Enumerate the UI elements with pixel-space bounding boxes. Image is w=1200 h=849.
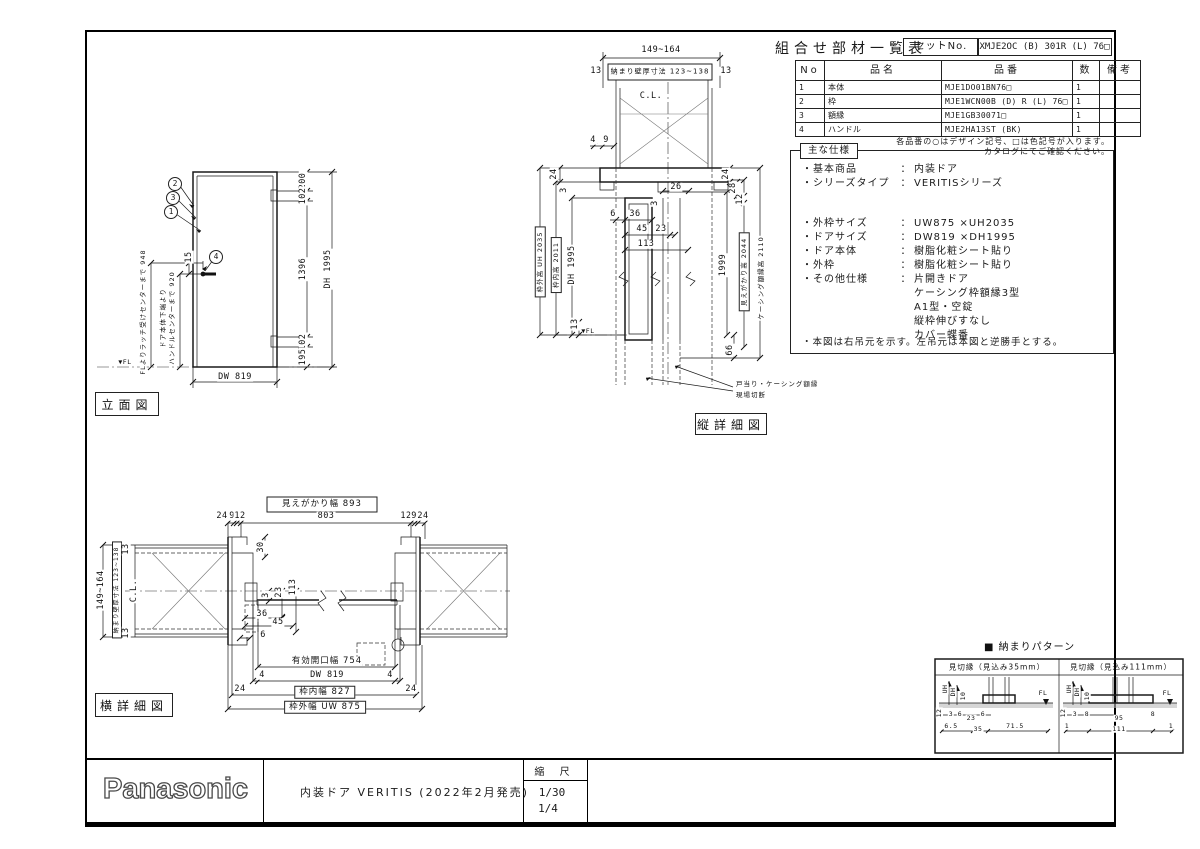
balloon-3: 3 [166, 191, 180, 205]
handle-height-note1: ドア本体下端より [160, 287, 167, 349]
dim-113: 113 [637, 240, 656, 249]
p1-65: 6.5 [943, 723, 958, 730]
cell-name: 枠 [825, 95, 942, 109]
elevation-drawing [85, 160, 425, 430]
dim-6: 6 [259, 631, 267, 640]
p1-fl: FL [1038, 690, 1049, 697]
latch-height-note: FLよりラッチ受けセンターまで 948 [140, 248, 147, 375]
dim-1396: 1396 [299, 257, 308, 281]
horizontal-detail-view: 149~164 納まり壁厚寸法 123~138 13 13 C.L. 見えがかり… [95, 495, 520, 735]
dim-24-right: 24 [722, 167, 731, 180]
dim-3: 3 [262, 591, 271, 599]
dim-24-right: 24 [404, 685, 417, 694]
dim-23: 23 [275, 585, 284, 598]
pattern1-header: 見切縁（見込み35mm） [948, 663, 1046, 671]
dim-45: 45 [635, 225, 648, 234]
dim-effective-width: 有効開口幅 754 [291, 657, 363, 666]
pattern2-header: 見切縁（見込み111mm） [1069, 663, 1173, 671]
cell-no: 2 [796, 95, 825, 109]
p1-715: 71.5 [1005, 723, 1025, 730]
col-name: 品名 [825, 61, 942, 81]
dim-visible-width: 見えがかり幅 893 [281, 500, 363, 509]
p1-dh: DH [950, 687, 957, 698]
elevation-view: 2 3 1 4 200 102 1396 102 195 DH 1995 DW … [85, 160, 425, 430]
spec-list: ・基本商品：内装ドア ・シリーズタイプ：VERITISシリーズ ・外枠サイズ：U… [802, 163, 1107, 343]
dim-30: 30 [257, 540, 266, 553]
dim-3-left: 3 [560, 186, 569, 194]
dim-113: 113 [289, 578, 298, 597]
dim-24-left: 24 [233, 685, 246, 694]
col-qty: 数 [1073, 61, 1100, 81]
centerline-label: C.L. [639, 92, 663, 101]
p1-10: 10 [960, 691, 967, 702]
horizontal-detail-label: 横詳細図 [95, 693, 173, 717]
p2-8b: 8 [1150, 711, 1156, 718]
dim-dh: DH 1995 [324, 248, 333, 289]
dim-36: 36 [255, 610, 268, 619]
p2-fl: FL [1162, 690, 1173, 697]
p1-12: 12 [936, 708, 943, 719]
dim-13-floor: 13 [571, 317, 580, 330]
cell-qty: 1 [1073, 81, 1100, 95]
dim-66: 66 [726, 343, 735, 356]
cell-name: 本体 [825, 81, 942, 95]
spec-value: 樹脂化粧シート貼り [914, 245, 1013, 259]
elevation-label: 立面図 [95, 392, 159, 416]
vertical-detail-view: 149~164 納まり壁厚寸法 123~138 13 13 C.L. 4 9 2… [530, 40, 785, 440]
col-no: No [796, 61, 825, 81]
cell-remarks [1100, 81, 1141, 95]
cell-part: MJE1GB30071□ [942, 109, 1073, 123]
spec-value: 内装ドア [914, 163, 958, 177]
cell-name: ハンドル [825, 123, 942, 137]
parts-table-header-row: No 品名 品番 数 備考 [796, 61, 1141, 81]
drawing-description: 内装ドア VERITIS (2022年2月発売) [300, 784, 529, 800]
cell-no: 4 [796, 123, 825, 137]
cell-name: 額縁 [825, 109, 942, 123]
cell-part: MJE1DO01BN76□ [942, 81, 1073, 95]
p2-111: 111 [1111, 726, 1126, 733]
p1-3: 3 [948, 711, 954, 718]
table-row: 4 ハンドル MJE2HA13ST (BK) 1 [796, 123, 1141, 137]
dim-13-left: 13 [589, 67, 602, 76]
fl-marker: ▼FL [117, 359, 132, 366]
spec-value: 片開きドア [914, 273, 969, 287]
dim-24a: 24 [215, 512, 228, 521]
spec-extra: A1型・空錠 [802, 301, 1107, 315]
dim-dw: DW 819 [217, 373, 253, 382]
dim-12: 12 [736, 192, 745, 205]
dim-13-right: 13 [719, 67, 732, 76]
dim-1999: 1999 [719, 253, 728, 277]
spec-colon: ： [898, 163, 914, 177]
spec-label: ・シリーズタイプ [802, 177, 898, 191]
p2-3: 3 [1072, 711, 1078, 718]
handle-height-note2: ハンドルセンターまで 920 [169, 270, 176, 365]
spec-colon: ： [898, 177, 914, 191]
p2-uh: UH [1066, 684, 1073, 695]
cell-qty: 1 [1073, 123, 1100, 137]
dim-door-height: DH 1995 [568, 244, 577, 285]
set-no-label: セットNo. [903, 38, 979, 56]
dim-24b: 24 [416, 512, 429, 521]
panasonic-logo: Panasonic [103, 773, 248, 806]
spec-value: DW819 ×DH1995 [914, 231, 1016, 245]
spec-label: ・基本商品 [802, 163, 898, 177]
col-remarks: 備考 [1100, 61, 1141, 81]
p2-1a: 1 [1064, 723, 1070, 730]
dim-13-bottom: 13 [122, 626, 131, 639]
dim-9: 9 [602, 136, 610, 145]
set-no-value: XMJE2OC (B) 301R (L) 76□ [977, 38, 1112, 56]
dim-6: 6 [609, 210, 617, 219]
dim-13-top: 13 [122, 542, 131, 555]
spec-extra: 縦枠伸びすなし [802, 315, 1107, 329]
p2-1b: 1 [1168, 723, 1174, 730]
p1-uh: UH [942, 684, 949, 695]
spec-box-label: 主な仕様 [800, 143, 858, 159]
dim-45: 45 [271, 618, 284, 627]
table-row: 2 枠 MJE1WCN00B (D) R (L) 76□ 1 [796, 95, 1141, 109]
p2-dh: DH [1074, 687, 1081, 698]
scale-divider [523, 780, 587, 781]
dim-wall-range: 149~164 [97, 569, 106, 610]
dim-36: 36 [628, 210, 641, 219]
divider [263, 760, 264, 822]
table-row: 3 額縁 MJE1GB30071□ 1 [796, 109, 1141, 123]
dim-dw: DW 819 [309, 671, 345, 680]
dim-frame-inner-height: 枠内高 2011 [551, 237, 562, 293]
fitting-pattern-panel: ■ 納まりパターン 見切縁（見込み35mm） 見切縁（見込み111mm） UH … [933, 643, 1189, 758]
cell-qty: 1 [1073, 95, 1100, 109]
title-block: Panasonic 内装ドア VERITIS (2022年2月発売) 縮 尺 1… [85, 758, 1112, 822]
dim-wall-box: 納まり壁厚寸法 123~138 [610, 69, 711, 76]
vertical-detail-label: 縦詳細図 [695, 413, 767, 435]
site-cut-note2: 現場切断 [735, 392, 767, 399]
dim-frame-outer-height: 枠外高 UH 2035 [535, 227, 546, 298]
cell-remarks [1100, 95, 1141, 109]
dim-23: 23 [654, 225, 667, 234]
p2-10: 10 [1084, 691, 1091, 702]
balloon-1: 1 [164, 205, 178, 219]
dim-195: 195 [299, 348, 308, 367]
site-cut-note1: 戸当り・ケーシング額縁 [735, 381, 819, 388]
cell-part: MJE1WCN00B (D) R (L) 76□ [942, 95, 1073, 109]
dim-102: 102 [299, 187, 308, 206]
spec-colon: ： [898, 217, 914, 231]
p2-12: 12 [1060, 708, 1067, 719]
spec-label: ・ドア本体 [802, 245, 898, 259]
dim-frame-outer-width: 枠外幅 UW 875 [284, 701, 366, 714]
dim-frame-inner-width: 枠内幅 827 [294, 686, 355, 699]
p1-6b: 6 [980, 711, 986, 718]
dim-4-left: 4 [258, 671, 266, 680]
cell-no: 1 [796, 81, 825, 95]
cell-qty: 1 [1073, 109, 1100, 123]
spec-colon: ： [898, 259, 914, 273]
dim-803: 803 [317, 512, 336, 521]
fitting-pattern-drawing [933, 643, 1189, 758]
spec-footnote: ・本図は右吊元を示す。左吊元は本図と逆勝手とする。 [802, 334, 1063, 348]
p1-35: 35 [973, 726, 984, 733]
cell-remarks [1100, 109, 1141, 123]
spec-value: UW875 ×UH2035 [914, 217, 1015, 231]
cell-no: 3 [796, 109, 825, 123]
spec-colon: ： [898, 273, 914, 287]
scale-value-2: 1/4 [519, 802, 577, 815]
dim-casing-height: ケーシング額縁高 2110 [758, 235, 765, 320]
col-part: 品番 [942, 61, 1073, 81]
spec-colon: ： [898, 245, 914, 259]
spec-extra: ケーシング枠額縁3型 [802, 287, 1107, 301]
dim-26: 26 [669, 183, 682, 192]
cell-part: MJE2HA13ST (BK) [942, 123, 1073, 137]
p2-8a: 8 [1084, 711, 1090, 718]
dim-wall-box: 納まり壁厚寸法 123~138 [112, 542, 122, 639]
dim-15: 15 [185, 250, 194, 263]
spec-label: ・外枠サイズ [802, 217, 898, 231]
p1-6a: 6 [957, 711, 963, 718]
dim-4-right: 4 [386, 671, 394, 680]
dim-12a: 12 [233, 512, 246, 521]
divider [587, 760, 588, 822]
dim-3-inner: 3 [651, 199, 660, 207]
spec-label: ・ドアサイズ [802, 231, 898, 245]
scale-value-1: 1/30 [523, 786, 581, 799]
dim-wall-range: 149~164 [640, 46, 681, 55]
spec-value: VERITISシリーズ [914, 177, 1003, 191]
p1-23: 23 [966, 715, 977, 722]
cell-remarks [1100, 123, 1141, 137]
parts-table: No 品名 品番 数 備考 1 本体 MJE1DO01BN76□ 1 2 枠 M… [795, 60, 1141, 137]
balloon-2: 2 [168, 177, 182, 191]
dim-visible-height: 見えがかり高 2044 [739, 233, 750, 312]
p2-95: 95 [1114, 715, 1125, 722]
spec-label: ・その他仕様 [802, 273, 898, 287]
dim-24-left: 24 [550, 167, 559, 180]
drawing-sheet: 組合せ部材一覧表 セットNo. XMJE2OC (B) 301R (L) 76□… [0, 0, 1200, 849]
spec-value: 樹脂化粧シート貼り [914, 259, 1013, 273]
spec-colon: ： [898, 231, 914, 245]
table-row: 1 本体 MJE1DO01BN76□ 1 [796, 81, 1141, 95]
fl-marker: ▼FL [580, 328, 595, 335]
spec-label: ・外枠 [802, 259, 898, 273]
balloon-4: 4 [209, 250, 223, 264]
fitting-pattern-title: ■ 納まりパターン [983, 643, 1076, 653]
centerline-label: C.L. [130, 579, 139, 603]
scale-label: 縮 尺 [523, 763, 587, 778]
dim-4: 4 [589, 136, 597, 145]
